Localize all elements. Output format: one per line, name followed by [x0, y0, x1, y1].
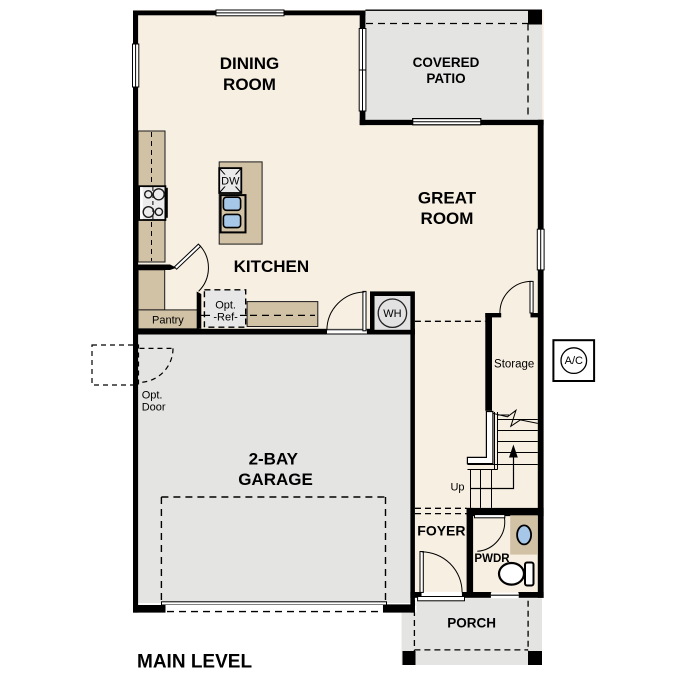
svg-text:DW: DW [221, 176, 240, 188]
svg-text:Opt.: Opt. [142, 390, 163, 402]
svg-text:A/C: A/C [565, 355, 583, 367]
svg-text:GREAT: GREAT [418, 188, 477, 207]
svg-text:Opt.: Opt. [215, 300, 236, 312]
svg-text:PORCH: PORCH [447, 616, 496, 631]
svg-text:WH: WH [383, 308, 401, 320]
svg-text:DINING: DINING [220, 54, 280, 73]
svg-text:ROOM: ROOM [421, 209, 474, 228]
svg-text:Door: Door [142, 401, 166, 413]
svg-text:Storage: Storage [494, 359, 534, 371]
svg-text:MAIN LEVEL: MAIN LEVEL [137, 651, 252, 672]
svg-text:Up: Up [450, 482, 464, 494]
svg-text:-Ref-: -Ref- [213, 311, 238, 323]
svg-text:2-BAY: 2-BAY [249, 450, 299, 469]
svg-text:ROOM: ROOM [223, 75, 276, 94]
svg-text:PATIO: PATIO [426, 71, 465, 86]
svg-text:GARAGE: GARAGE [238, 470, 313, 489]
svg-text:PWDR: PWDR [474, 553, 510, 565]
svg-text:COVERED: COVERED [413, 55, 480, 70]
svg-text:KITCHEN: KITCHEN [234, 257, 310, 276]
svg-text:FOYER: FOYER [417, 523, 465, 539]
svg-text:Pantry: Pantry [152, 315, 184, 327]
